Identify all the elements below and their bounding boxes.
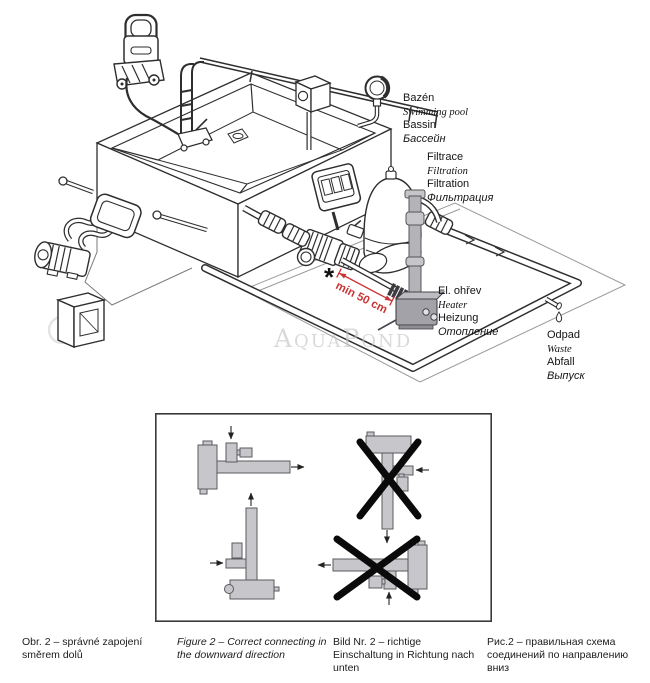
label-pool-cs: Bazén [403,92,468,106]
label-filtration-cs: Filtrace [427,151,493,165]
caption-de: Bild Nr. 2 – richtige Einschaltung in Ri… [333,636,483,675]
label-filtration-de: Filtration [427,178,493,192]
label-heater-de: Heizung [438,312,498,326]
strainer-pot [298,249,315,266]
caption-ru: Рис.2 – правильная схема соединений по н… [487,636,637,675]
label-pool-ru: Бассейн [403,133,468,147]
manual-page: AquaPond Bazén Swimming pool Bassin Басс… [0,0,650,683]
inlet-jet [59,177,93,192]
label-heater-cs: El. ohřev [438,285,498,299]
dimension-asterisk: * [324,264,334,290]
heater-knob [423,309,429,315]
heater-column [405,190,439,302]
caption-en: Figure 2 – Correct connecting in the dow… [177,636,327,662]
label-waste-cs: Odpad [547,329,585,343]
heater-knob [431,314,437,320]
label-pool: Bazén Swimming pool Bassin Бассейн [403,92,468,146]
label-filtration-ru: Фильтрация [427,192,493,206]
label-pool-en: Swimming pool [403,106,468,120]
caption-cs: Obr. 2 – správné zapojení směrem dolů [22,636,172,662]
label-filtration-en: Filtration [427,165,493,179]
label-waste-en: Waste [547,343,585,357]
wall-box [58,293,104,347]
label-waste: Odpad Waste Abfall Выпуск [547,329,585,383]
label-heater-ru: Отопление [438,326,498,340]
orientation-figure [155,413,492,622]
label-heater: El. ohřev Heater Heizung Отопление [438,285,498,339]
label-filtration: Filtrace Filtration Filtration Фильтраци… [427,151,493,205]
pool-cleaner-cart [114,15,164,89]
label-waste-ru: Выпуск [547,370,585,384]
label-waste-de: Abfall [547,356,585,370]
label-heater-en: Heater [438,299,498,313]
watermark-text: AquaPond [274,324,412,353]
water-drip-icon [556,312,561,322]
label-pool-de: Bassin [403,119,468,133]
